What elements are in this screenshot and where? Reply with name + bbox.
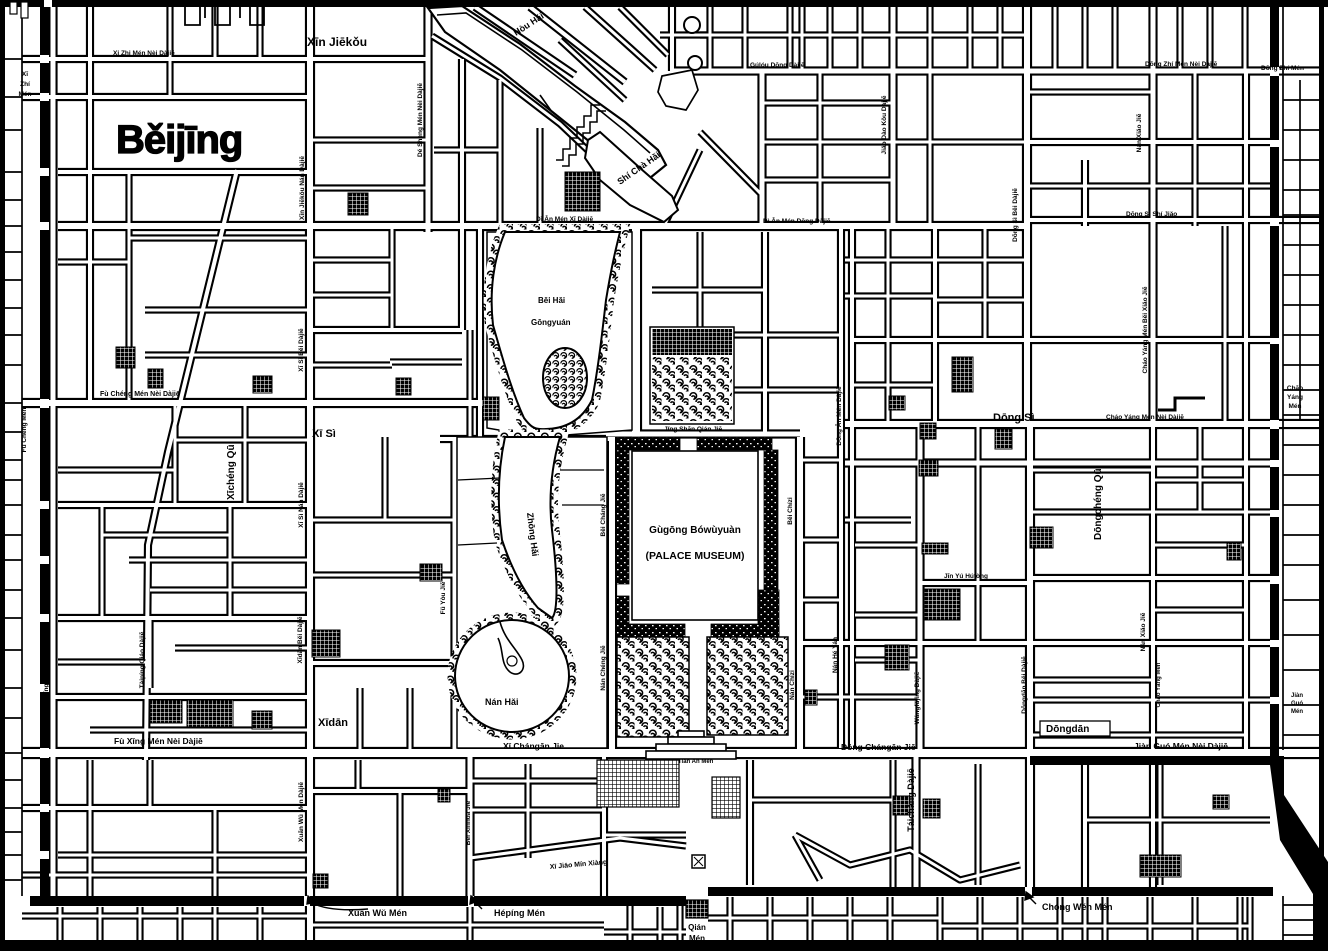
svg-text:Chóng Wén Mén: Chóng Wén Mén <box>1042 902 1113 912</box>
svg-text:Xī: Xī <box>22 71 28 78</box>
svg-text:Fǔ Yòu Jiē: Fǔ Yòu Jiē <box>440 581 447 614</box>
svg-text:Xī Sì Nán Dàjiē: Xī Sì Nán Dàjiē <box>298 482 305 528</box>
svg-text:Nán Hǎi: Nán Hǎi <box>485 697 519 707</box>
svg-text:Dōng Chángān Jiē: Dōng Chángān Jiē <box>841 742 916 752</box>
svg-text:Xīn Jiēkǒu Nán Dàjiē: Xīn Jiēkǒu Nán Dàjiē <box>299 156 306 220</box>
svg-text:Tian An Mén: Tian An Mén <box>678 759 714 765</box>
svg-text:Běijīng: Běijīng <box>116 118 242 162</box>
svg-text:Táichǎng Dàjiē: Táichǎng Dàjiē <box>906 768 916 832</box>
svg-text:Xi Zhi Mén Nèi Dàjiē: Xi Zhi Mén Nèi Dàjiē <box>113 50 175 57</box>
svg-text:Qián: Qián <box>688 923 706 932</box>
svg-text:Xī Sì Běi Dàjiē: Xī Sì Běi Dàjiē <box>298 328 305 372</box>
svg-text:Xīchéng Qū: Xīchéng Qū <box>226 444 237 500</box>
svg-text:Jiǎo Dào Kǒu Dàjiē: Jiǎo Dào Kǒu Dàjiē <box>881 95 888 154</box>
svg-text:Tàipíng Qiáo Dàjiē: Tàipíng Qiáo Dàjiē <box>139 631 146 688</box>
svg-text:Xīn Jiēkǒu: Xīn Jiēkǒu <box>307 35 367 49</box>
svg-text:Běi Xīnhuá Jiē: Běi Xīnhuá Jiē <box>465 800 472 845</box>
svg-text:Cháo Yáng Mén Nèi Dàjiē: Cháo Yáng Mén Nèi Dàjiē <box>1106 414 1184 421</box>
svg-text:Dōngdān: Dōngdān <box>1046 724 1089 735</box>
svg-text:Nán Xiǎo Jiē: Nán Xiǎo Jiē <box>1136 113 1143 152</box>
svg-text:Yáng: Yáng <box>1287 394 1303 401</box>
svg-text:Běi Cháng Jiē: Běi Cháng Jiē <box>600 493 607 536</box>
svg-text:Hépíng Mén: Hépíng Mén <box>494 908 545 918</box>
svg-text:Jīn Yú Hútòng: Jīn Yú Hútòng <box>944 573 988 580</box>
svg-text:Xuān Wǔ Mén Dàjiē: Xuān Wǔ Mén Dàjiē <box>298 782 305 842</box>
svg-text:Wángfǔjǐng Dàjiē: Wángfǔjǐng Dàjiē <box>914 671 921 724</box>
svg-text:Xǐ Chángān Jie: Xǐ Chángān Jie <box>503 741 564 751</box>
svg-text:Dōng Zhí Mén Nèi Dàjiē: Dōng Zhí Mén Nèi Dàjiē <box>1145 61 1218 68</box>
svg-text:Gùgōng Bówùyuàn: Gùgōng Bówùyuàn <box>649 525 741 536</box>
svg-text:Dōngdān Běi Dàjiē: Dōngdān Běi Dàjiē <box>1021 656 1028 714</box>
svg-text:Mén: Mén <box>1291 709 1303 715</box>
svg-text:Cháo Yáng Mén Běi Xiǎo Jiē: Cháo Yáng Mén Běi Xiǎo Jiē <box>1142 286 1149 373</box>
svg-text:Jiàn Guó Mén Nèi Dàjiē: Jiàn Guó Mén Nèi Dàjiē <box>1134 741 1228 751</box>
svg-text:Nán Xiǎo Jiē: Nán Xiǎo Jiē <box>1140 612 1147 651</box>
svg-text:Dé Shèng Mén Nèi Dàjiē: Dé Shèng Mén Nèi Dàjiē <box>417 83 424 157</box>
svg-text:Gúlóu Dōng Dàjiē: Gúlóu Dōng Dàjiē <box>750 62 805 69</box>
svg-text:Dōng Sì: Dōng Sì <box>993 412 1035 424</box>
svg-text:Xī Sì: Xī Sì <box>312 428 336 440</box>
svg-text:Běi Hǎi: Běi Hǎi <box>538 296 565 305</box>
svg-text:Fǔ Chéng Mén: Fǔ Chéng Mén <box>21 408 28 453</box>
svg-text:Dì Ān Mén Dōng Dàjiē: Dì Ān Mén Dōng Dàjiē <box>763 217 831 225</box>
svg-text:Mén: Mén <box>19 91 32 98</box>
svg-text:Mén: Mén <box>1289 403 1302 410</box>
svg-text:Fù Chéng Mén Nèi Dàjiē: Fù Chéng Mén Nèi Dàjiē <box>100 391 180 398</box>
svg-text:Dōng Zhí Mén: Dōng Zhí Mén <box>1261 65 1304 72</box>
svg-text:Mén: Mén <box>689 934 705 943</box>
svg-text:Xīdān Běi Dàjiē: Xīdān Běi Dàjiē <box>297 616 304 663</box>
svg-text:Nán Hé Yán: Nán Hé Yán <box>832 637 839 673</box>
svg-text:Guó: Guó <box>1291 701 1303 707</box>
svg-text:Dōng Sì Shí Jiǎo: Dōng Sì Shí Jiǎo <box>1126 211 1177 218</box>
svg-text:Nán Chéng Jiē: Nán Chéng Jiē <box>600 645 607 691</box>
svg-text:Dōng Ān Mén Dàjiē: Dōng Ān Mén Dàjiē <box>835 386 843 446</box>
svg-text:Chāo Yáng Mén: Chāo Yáng Mén <box>1156 662 1162 707</box>
svg-text:Běi Chízi: Běi Chízi <box>787 497 794 525</box>
svg-text:Fù Xǐng Mén Nèi Dàjiē: Fù Xǐng Mén Nèi Dàjiē <box>114 736 203 746</box>
svg-text:Jiàn: Jiàn <box>1291 693 1303 699</box>
svg-text:Nán Chízi: Nán Chízi <box>789 670 796 700</box>
svg-text:Dōng Sì Běi Dàjiē: Dōng Sì Běi Dàjiē <box>1012 188 1019 242</box>
svg-text:Xuān Wǔ Mén: Xuān Wǔ Mén <box>348 908 407 918</box>
svg-text:Gōngyuán: Gōngyuán <box>531 318 571 327</box>
svg-text:(PALACE MUSEUM): (PALACE MUSEUM) <box>646 550 745 562</box>
svg-text:Dì Ān Mén Xī Dàjiē: Dì Ān Mén Xī Dàjiē <box>536 215 593 223</box>
svg-text:Chāo: Chāo <box>1287 385 1303 392</box>
svg-text:Jǐng Shān Qián Jiē: Jǐng Shān Qián Jiē <box>664 426 723 433</box>
svg-text:Zhí: Zhí <box>20 81 30 88</box>
svg-text:Xīdān: Xīdān <box>318 717 348 729</box>
svg-text:Fù Xīng Mén: Fù Xīng Mén <box>43 669 50 708</box>
svg-text:Dōngchéng Qū: Dōngchéng Qū <box>1093 468 1104 540</box>
